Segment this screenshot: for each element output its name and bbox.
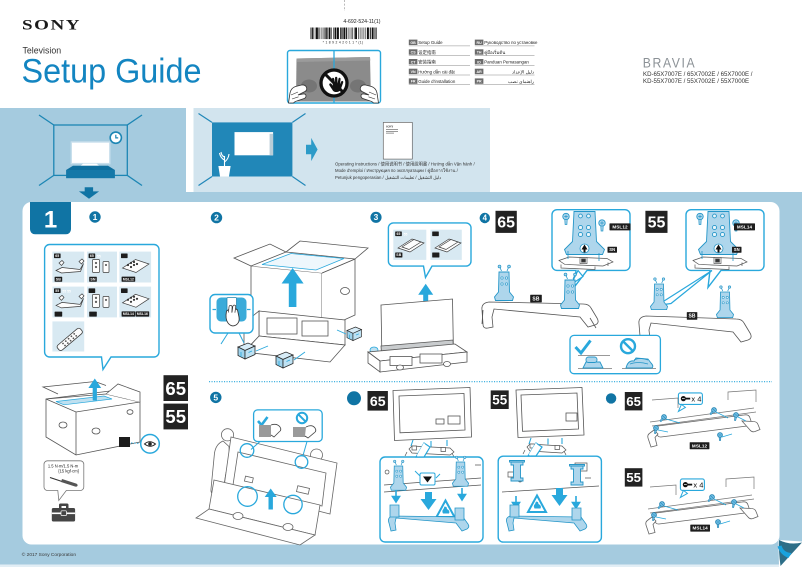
- svg-text:2: 2: [214, 213, 219, 223]
- svg-text:安装指南: 安装指南: [418, 59, 436, 66]
- svg-text:Petunjuk pengoperasian / دليل: Petunjuk pengoperasian / دليل التشغيل / …: [335, 175, 441, 180]
- svg-text:55: 55: [626, 470, 641, 485]
- svg-text:设定指南: 设定指南: [418, 49, 436, 56]
- svg-text:55: 55: [648, 215, 666, 232]
- svg-text:55: 55: [492, 393, 507, 408]
- svg-text:1: 1: [44, 207, 57, 234]
- svg-text:65: 65: [370, 393, 386, 409]
- svg-text:ID: ID: [477, 60, 481, 64]
- svg-text:MSL14: MSL14: [123, 312, 134, 316]
- svg-text:4: 4: [483, 214, 488, 223]
- svg-text:x 4: x 4: [693, 481, 703, 490]
- svg-text:FR: FR: [411, 80, 416, 84]
- svg-text:MSL14: MSL14: [692, 526, 708, 531]
- svg-text:x 4: x 4: [691, 395, 701, 404]
- svg-text:© 2017 Sony Corporation: © 2017 Sony Corporation: [22, 551, 77, 558]
- svg-text:55: 55: [55, 289, 59, 293]
- svg-text:MSL14: MSL14: [737, 225, 753, 230]
- svg-text:5: 5: [213, 392, 218, 402]
- svg-text:65: 65: [90, 254, 94, 258]
- svg-text:65: 65: [497, 215, 515, 232]
- svg-text:65: 65: [165, 378, 186, 399]
- svg-text:MSL12: MSL12: [612, 225, 628, 230]
- svg-text:CS: CS: [411, 51, 417, 55]
- svg-text:55: 55: [404, 233, 408, 237]
- svg-text:TH: TH: [477, 51, 482, 55]
- svg-text:SB: SB: [396, 253, 401, 257]
- svg-text:SB: SB: [688, 314, 695, 320]
- svg-text:Setup Guide: Setup Guide: [418, 40, 443, 45]
- svg-text:SB: SB: [532, 296, 539, 302]
- svg-text:دليل الإعداد: دليل الإعداد: [512, 69, 534, 74]
- svg-text:VN: VN: [411, 70, 416, 74]
- svg-text:1: 1: [93, 212, 98, 222]
- svg-text:MSL12: MSL12: [692, 443, 708, 448]
- svg-text:55: 55: [165, 406, 186, 427]
- svg-text:Руководство по установке: Руководство по установке: [484, 40, 538, 45]
- svg-text:SN: SN: [90, 278, 95, 282]
- svg-text:SN: SN: [609, 247, 615, 252]
- svg-text:Hướng dẫn cài đặt: Hướng dẫn cài đặt: [418, 69, 455, 74]
- svg-text:Setup Guide: Setup Guide: [22, 53, 202, 91]
- svg-text:4-692-524-11(1): 4-692-524-11(1): [343, 19, 380, 25]
- svg-text:Guide d’installation: Guide d’installation: [418, 79, 456, 84]
- svg-text:65: 65: [397, 232, 401, 236]
- svg-text:65: 65: [626, 394, 641, 409]
- svg-text:55 55: 55 55: [62, 289, 71, 293]
- svg-text:คู่มือเริ่มต้น: คู่มือเริ่มต้น: [484, 49, 505, 56]
- svg-text:GB: GB: [410, 41, 416, 45]
- svg-text:SONY: SONY: [22, 17, 81, 33]
- svg-text:55: 55: [97, 255, 101, 259]
- svg-text:MSL12: MSL12: [123, 277, 134, 281]
- svg-text:Panduan Pemasangan: Panduan Pemasangan: [484, 60, 529, 65]
- svg-text:CT: CT: [411, 60, 417, 64]
- svg-text:3: 3: [374, 212, 379, 222]
- svg-text:AR: AR: [476, 70, 482, 74]
- svg-text:Operating Instructions / 使用说明书: Operating Instructions / 使用说明书 / 使用說明書 /…: [335, 161, 475, 168]
- svg-text:{15 kgf·cm}: {15 kgf·cm}: [58, 469, 79, 474]
- svg-text:* 1 8 9 2 4 2 0 1 1 * (1): * 1 8 9 2 4 2 0 1 1 * (1): [323, 41, 364, 45]
- svg-text:MSL16: MSL16: [137, 312, 148, 316]
- svg-text:SN: SN: [734, 247, 740, 252]
- svg-text:PR: PR: [477, 80, 482, 84]
- svg-text:SONY: SONY: [386, 126, 393, 129]
- svg-text:BRAVIA: BRAVIA: [643, 55, 697, 70]
- svg-text:RU: RU: [476, 41, 482, 45]
- svg-text:SB: SB: [56, 278, 61, 282]
- svg-text:65: 65: [55, 254, 59, 258]
- svg-text:KD-55X7007E / 55X7002E / 55X70: KD-55X7007E / 55X7002E / 55X7000E: [643, 78, 749, 85]
